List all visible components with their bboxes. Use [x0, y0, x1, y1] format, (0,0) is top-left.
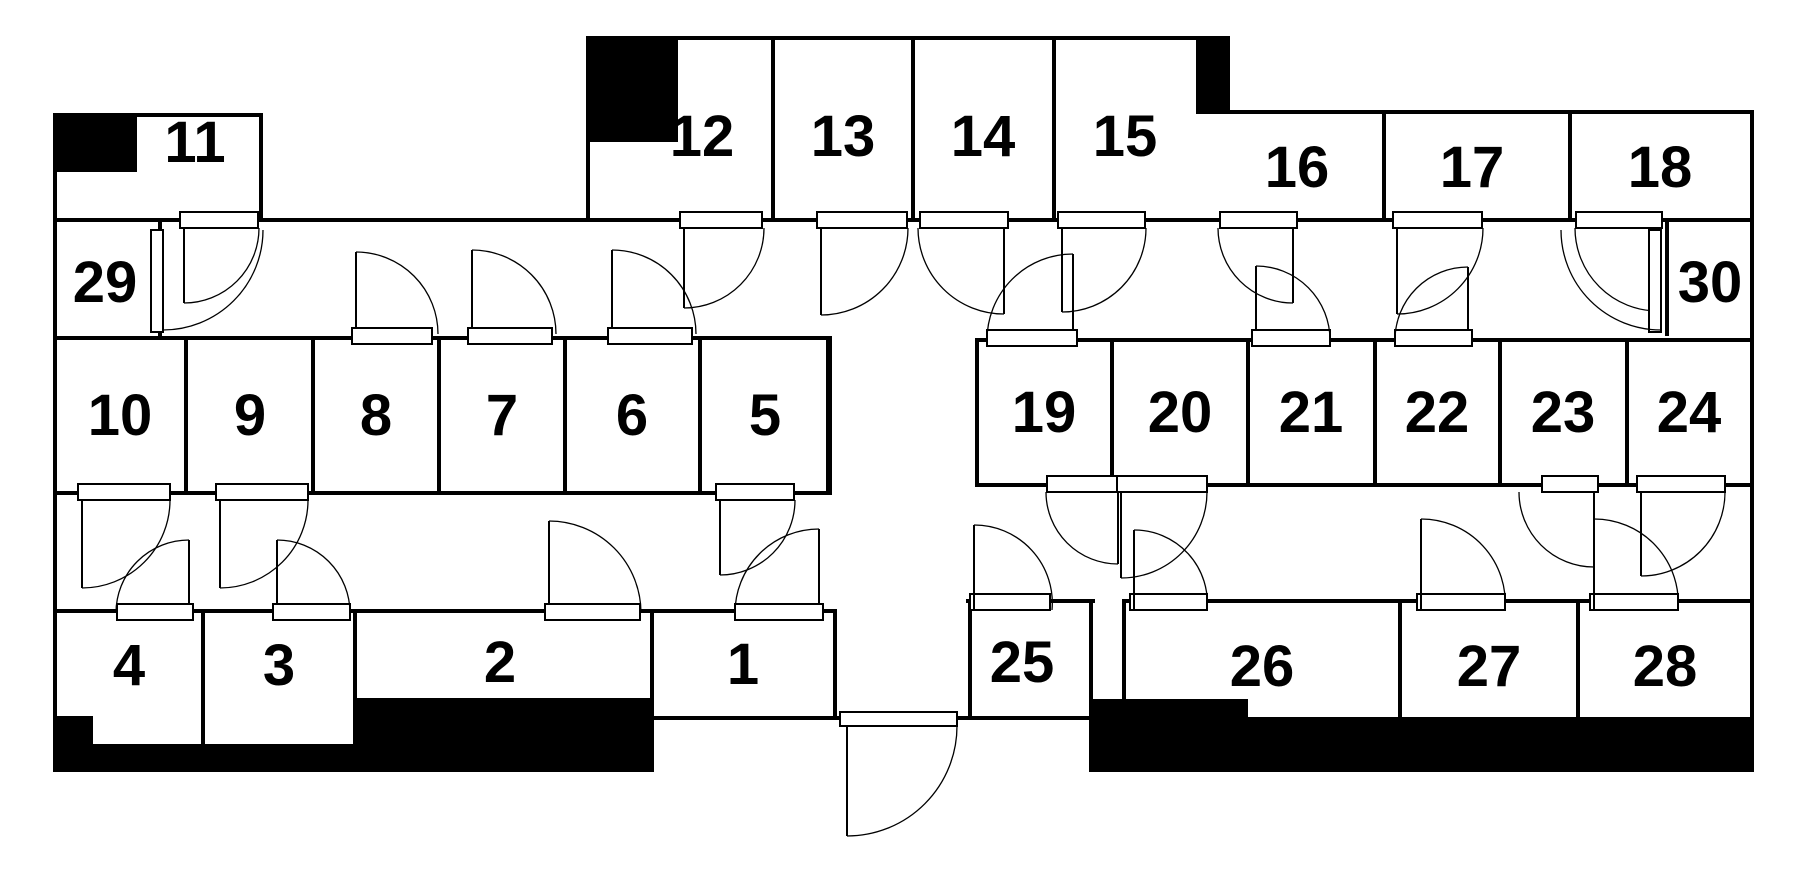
floor-plan-canvas: 1 2 3 4 5 6 7 8 9 10 11 12 13 14 15 16 1… [0, 0, 1812, 876]
door-swing-arc [277, 540, 350, 613]
door-frame [1058, 212, 1145, 228]
door-frame [352, 328, 432, 344]
room-label-20: 20 [1148, 380, 1213, 445]
room-label-30: 30 [1678, 250, 1743, 315]
room-label-15: 15 [1093, 104, 1158, 169]
door-swing-arc [720, 500, 795, 575]
wall-segment [1196, 110, 1754, 114]
door-swing-arc [1641, 492, 1725, 576]
door-frame [117, 604, 193, 620]
door-frame [680, 212, 762, 228]
room-label-14: 14 [951, 104, 1016, 169]
solid-block [1196, 36, 1230, 114]
door-frame [1542, 476, 1598, 492]
door-swing-arc [821, 228, 908, 315]
door-swing-arc [1397, 228, 1483, 314]
door-swing-arc [1519, 492, 1594, 567]
door-room-28 [1590, 519, 1678, 610]
door-frame [78, 484, 170, 500]
door-room-21 [1252, 266, 1330, 346]
room-label-7: 7 [486, 383, 518, 448]
door-room-14 [918, 212, 1008, 314]
room-label-8: 8 [360, 383, 392, 448]
floor-plan: 1 2 3 4 5 6 7 8 9 10 11 12 13 14 15 16 1… [0, 0, 1812, 876]
wall-segment [563, 336, 567, 495]
door-swing-arc [356, 252, 438, 334]
door-swing-arc [220, 500, 308, 588]
room-label-13: 13 [811, 104, 876, 169]
door-room-29 [151, 230, 263, 332]
door-room-8 [352, 252, 438, 344]
door-frame [970, 594, 1050, 610]
room-label-6: 6 [616, 383, 648, 448]
wall-segment [311, 336, 315, 495]
door-frame [1220, 212, 1297, 228]
door-room-25 [970, 525, 1052, 610]
room-label-18: 18 [1628, 135, 1693, 200]
room-label-25: 25 [990, 630, 1055, 695]
wall-segment [586, 36, 1200, 40]
door-frame [1252, 330, 1330, 346]
wall-segment [650, 716, 842, 720]
door-room-5 [716, 484, 795, 575]
door-swing-arc [1561, 230, 1661, 330]
door-frame [1117, 476, 1207, 492]
door-room-11 [180, 212, 259, 303]
door-frame [817, 212, 907, 228]
door-frame [468, 328, 552, 344]
wall-segment [968, 599, 972, 720]
door-frame [216, 484, 308, 500]
wall-segment [826, 336, 832, 495]
wall-segment [1498, 340, 1502, 487]
door-frame [180, 212, 258, 228]
solid-block [586, 36, 678, 142]
door-swing-arc [163, 230, 263, 330]
door-swing-arc [549, 521, 641, 613]
room-label-5: 5 [749, 383, 781, 448]
door-room-23 [1519, 476, 1598, 567]
solid-block [353, 698, 654, 772]
door-swing-arc [847, 726, 957, 836]
door-swing-arc [116, 540, 189, 613]
door-frame [1590, 594, 1678, 610]
door-room-12 [680, 212, 764, 308]
door-frame [735, 604, 823, 620]
room-label-28: 28 [1633, 634, 1698, 699]
solid-block [1122, 717, 1754, 772]
door-room-6 [608, 250, 696, 344]
door-swing-arc [684, 228, 764, 308]
door-swing-arc [1046, 492, 1118, 564]
door-swing-arc [1062, 228, 1146, 312]
door-room-27 [1417, 519, 1505, 610]
wall-segment [1398, 599, 1402, 721]
wall-segment [1110, 340, 1114, 487]
room-label-29: 29 [73, 250, 138, 315]
door-frame [1130, 594, 1207, 610]
wall-segment [911, 36, 915, 222]
door-frame [987, 330, 1077, 346]
wall-segment [1373, 340, 1377, 487]
room-label-16: 16 [1265, 135, 1330, 200]
room-label-21: 21 [1279, 380, 1344, 445]
door-room-19 [987, 254, 1077, 346]
door-frame [1393, 212, 1482, 228]
door-swing-arc [735, 529, 819, 613]
door-swing-arc [918, 228, 1004, 314]
door-frame [920, 212, 1008, 228]
room-label-2: 2 [484, 630, 516, 695]
door-leaf [151, 230, 163, 332]
door-room-10 [78, 484, 170, 588]
wall-segment [1382, 110, 1386, 222]
door-room-30 [1561, 230, 1661, 332]
door-room-13 [817, 212, 908, 315]
wall-segment [1246, 340, 1250, 487]
door-swing-arc [184, 228, 259, 303]
door-room-24 [1637, 476, 1725, 576]
wall-segment [698, 336, 702, 495]
room-label-11: 11 [164, 110, 225, 175]
door-room-19-lower [1046, 476, 1122, 564]
door-room-1 [735, 529, 823, 620]
wall-segment [1576, 599, 1580, 721]
door-frame [1576, 212, 1662, 228]
room-label-3: 3 [263, 633, 295, 698]
solid-block [53, 113, 137, 172]
door-frame [545, 604, 640, 620]
door-swing-arc [987, 254, 1073, 340]
room-label-27: 27 [1457, 634, 1522, 699]
door-swing-arc [472, 250, 556, 334]
room-label-19: 19 [1012, 380, 1077, 445]
wall-segment [975, 338, 1754, 342]
door-frame [840, 712, 957, 726]
door-room-2 [545, 521, 641, 620]
room-label-12: 12 [670, 104, 735, 169]
door-room-4 [116, 540, 193, 620]
wall-segment [1665, 222, 1669, 336]
wall-segment [771, 36, 775, 222]
main-entrance-door [840, 712, 957, 836]
wall-segment [53, 336, 832, 340]
room-label-4: 4 [113, 633, 145, 698]
room-label-1: 1 [727, 632, 759, 697]
wall-segment [184, 336, 188, 495]
door-frame [1417, 594, 1505, 610]
wall-segment [1625, 340, 1629, 487]
wall-segment [259, 113, 263, 222]
wall-segment [437, 336, 441, 495]
room-label-24: 24 [1657, 380, 1722, 445]
door-frame [1395, 330, 1472, 346]
door-frame [1047, 476, 1122, 492]
solid-block [53, 744, 357, 772]
wall-segment [1568, 110, 1572, 222]
door-frame [608, 328, 692, 344]
wall-segment [975, 340, 979, 487]
wall-segment [1052, 36, 1056, 222]
wall-segment [53, 113, 57, 772]
wall-segment [833, 609, 837, 720]
wall-segment [955, 716, 1095, 720]
room-label-17: 17 [1440, 135, 1505, 200]
door-room-3 [273, 540, 350, 620]
room-label-26: 26 [1230, 634, 1295, 699]
room-label-22: 22 [1405, 380, 1470, 445]
door-leaf [1649, 230, 1661, 332]
door-room-9 [216, 484, 308, 588]
solid-block [53, 716, 93, 748]
room-label-9: 9 [234, 383, 266, 448]
wall-segment [201, 609, 205, 748]
door-room-16 [1218, 212, 1297, 303]
door-room-15 [1058, 212, 1146, 312]
wall-segment [1750, 110, 1754, 772]
door-frame [273, 604, 350, 620]
door-room-26 [1130, 530, 1207, 610]
door-room-17 [1393, 212, 1483, 314]
door-frame [1637, 476, 1725, 492]
door-room-7 [468, 250, 556, 344]
door-room-20 [1117, 476, 1207, 578]
room-label-10: 10 [88, 383, 153, 448]
door-frame [716, 484, 794, 500]
room-label-23: 23 [1531, 380, 1596, 445]
